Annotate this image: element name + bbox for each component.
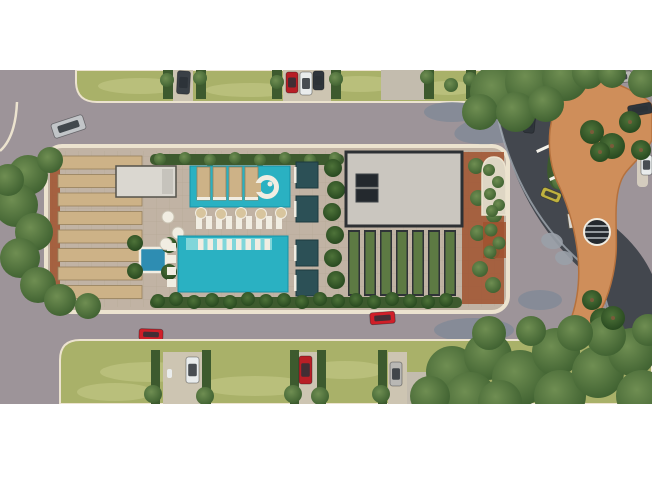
car-red-road-west (139, 329, 163, 341)
car-red-road-west-glass (143, 332, 159, 338)
sun-loungers (226, 216, 232, 229)
south-palm-row (439, 293, 453, 307)
screenshot-canvas (0, 0, 652, 480)
trellis-planting (430, 232, 439, 294)
north-hedge-shrubs (204, 154, 216, 166)
ledge-loungers (217, 239, 223, 250)
southeast-forest (472, 316, 506, 350)
poolside-cabanas (296, 196, 318, 222)
daybeds (167, 279, 176, 287)
poolside-cabanas (296, 240, 318, 266)
north-shrub-trees (329, 72, 343, 86)
pool-house-rooftop (162, 169, 173, 194)
pergola-rows (58, 249, 142, 262)
north-hedge-shrubs (229, 152, 241, 164)
parked-car-red-south-glass (301, 363, 310, 376)
car-red-road-east (370, 311, 396, 325)
south-palm-row (187, 295, 201, 309)
kids-pool-palms (127, 235, 143, 251)
pool-cabanas (229, 167, 242, 200)
east-garden-trees (472, 261, 488, 277)
clubhouse-skylights (356, 189, 378, 202)
parked-car-white-south (186, 357, 199, 383)
south-hedge-trees (284, 385, 302, 403)
north-hedge-shrubs (154, 153, 166, 165)
north-hedge-shrubs (279, 152, 291, 164)
pool-cabana-decks (197, 197, 210, 200)
ledge-loungers (246, 239, 252, 250)
spa-water (260, 180, 274, 194)
palm-trunks-north (598, 150, 602, 154)
parked-car-red-south (299, 356, 312, 384)
west-trees (44, 284, 76, 316)
parked-car-gray-south (390, 362, 402, 386)
pool-cabana-decks (245, 197, 258, 200)
north-shrub-trees (193, 71, 207, 85)
palm-trunks-north (610, 144, 614, 148)
west-trees (37, 147, 63, 173)
parked-car-gray-south-glass (392, 368, 400, 380)
south-palm-row (313, 292, 327, 306)
spa-bridge (253, 183, 261, 192)
cabana-fronts (294, 245, 297, 261)
lounger-umbrellas (256, 209, 267, 220)
south-palm-row (169, 292, 183, 306)
ledge-loungers (208, 239, 214, 250)
parked-car-dark (176, 71, 190, 95)
south-palm-row (331, 294, 345, 308)
north-driveway (381, 70, 425, 100)
ledge-loungers (236, 239, 242, 250)
parked-car-white (300, 72, 312, 95)
south-palm-row (223, 295, 237, 309)
northeast-trees (528, 86, 564, 122)
ledge-loungers (255, 239, 261, 250)
parked-car-dark-glass (179, 77, 188, 88)
cabana-fronts (294, 275, 297, 291)
southeast-forest (557, 315, 593, 351)
entry-planter-south-shrubs (485, 224, 498, 237)
south-hedge-trees (372, 385, 390, 403)
south-hedge-trees (144, 385, 162, 403)
lounger-umbrellas (276, 208, 287, 219)
palm-trunks-north (639, 148, 643, 152)
trellis-planting (446, 232, 455, 294)
southeast-palm-trunk (611, 316, 615, 320)
parked-car-dark (313, 71, 324, 90)
render-content (0, 55, 652, 424)
pool-cabana-decks (213, 197, 226, 200)
northeast-trees (462, 94, 498, 130)
south-palm-row (241, 292, 255, 306)
central-palm-row (327, 181, 345, 199)
cafe-umbrellas (162, 211, 174, 223)
ledge-loungers (227, 239, 233, 250)
south-palm-row (385, 292, 399, 306)
car-east-parked-glass (643, 160, 650, 170)
central-palm-row (323, 203, 341, 221)
ledge-loungers (265, 239, 271, 250)
cabana-fronts (294, 201, 297, 217)
south-palm-row (151, 294, 165, 308)
tree-shadows (518, 290, 562, 310)
scooter (167, 369, 172, 378)
parked-car-white-glass (302, 78, 310, 89)
central-palm-row (324, 159, 342, 177)
south-palm-row (421, 295, 435, 309)
sun-loungers (266, 216, 272, 229)
lounger-umbrellas (216, 209, 227, 220)
poolside-cabanas (296, 162, 318, 188)
trellis-planting (350, 232, 359, 294)
central-palm-row (324, 249, 342, 267)
spa-seat (268, 182, 273, 187)
pool-cabana-decks (229, 197, 242, 200)
north-shrub-trees (160, 73, 174, 87)
trellis-planting (414, 232, 423, 294)
north-hedge-shrubs (254, 154, 266, 166)
southeast-forest (516, 316, 546, 346)
trellis-planting (366, 232, 375, 294)
south-palm-row (349, 293, 363, 307)
pool-cabanas (213, 167, 226, 200)
parked-car-white-south-glass (188, 364, 197, 376)
daybeds (167, 267, 176, 275)
daybeds (167, 255, 176, 263)
entry-planter-shrubs (484, 188, 496, 200)
parked-car-red-glass (288, 77, 296, 87)
south-hedge-trees (196, 387, 214, 405)
entry-planter-south-shrubs (484, 246, 497, 259)
lounger-umbrellas (196, 208, 207, 219)
north-hedge-shrubs (179, 152, 191, 164)
palm-trunks-south (590, 298, 594, 302)
pergola-rows (58, 212, 142, 225)
daybeds (167, 243, 176, 251)
south-palm-row (205, 293, 219, 307)
west-trees (75, 293, 101, 319)
central-palm-row (327, 271, 345, 289)
south-palm-row (403, 294, 417, 308)
south-lawn-highlights (77, 383, 153, 401)
car-red-road-east-glass (374, 315, 391, 322)
kids-pool-palms (127, 263, 143, 279)
poolside-cabanas (296, 270, 318, 296)
palm-trunks-north (590, 130, 594, 134)
south-palm-row (259, 294, 273, 308)
north-shrub-trees (270, 75, 284, 89)
lounger-umbrellas (236, 208, 247, 219)
south-hedge-trees (311, 387, 329, 405)
pool-cabanas (197, 167, 210, 200)
parked-car-dark-glass (315, 76, 322, 85)
sun-loungers (246, 216, 252, 229)
palm-trunks-north (628, 120, 632, 124)
south-palm-row (295, 295, 309, 309)
south-palm-row (277, 293, 291, 307)
east-garden-trees (485, 277, 501, 293)
trellis-planting (382, 232, 391, 294)
north-shrub-trees (444, 78, 458, 92)
south-palm-row (367, 295, 381, 309)
trellis-planting (398, 232, 407, 294)
north-shrub-trees (420, 70, 434, 84)
entry-planter-shrubs (483, 164, 495, 176)
cabana-fronts (294, 167, 297, 183)
sun-loungers (206, 216, 212, 229)
site-plan-render (0, 0, 652, 480)
ledge-loungers (198, 239, 204, 250)
entry-planter-shrubs (492, 176, 504, 188)
clubhouse-skylights (356, 174, 378, 187)
central-palm-row (326, 226, 344, 244)
parked-car-red (286, 72, 298, 93)
entry-planter-shrubs (486, 205, 498, 217)
